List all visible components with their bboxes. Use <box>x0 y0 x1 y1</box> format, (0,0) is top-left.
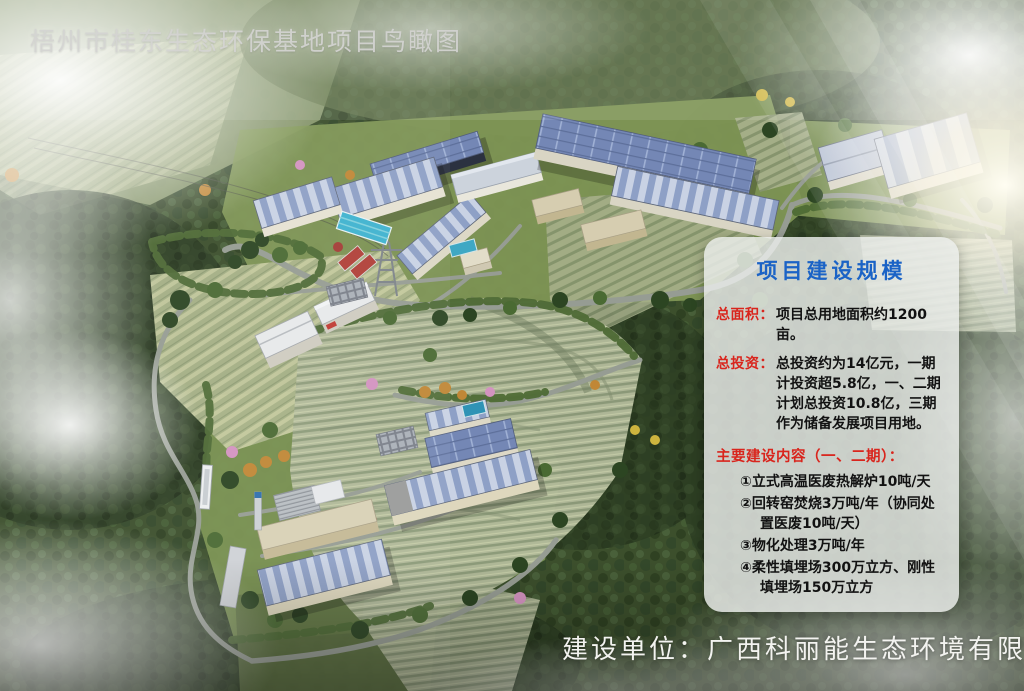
construction-items-list: ①立式高温医废热解炉10吨/天 ②回转窑焚烧3万吨/年（协同处置医废10吨/天）… <box>716 472 947 598</box>
main-construction-heading: 主要建设内容（一、二期）： <box>716 447 947 468</box>
construction-item-1: ①立式高温医废热解炉10吨/天 <box>740 472 947 492</box>
construction-unit: 建设单位：广西科丽能生态环境有限公司 <box>562 629 1024 666</box>
total-investment-row: 总投资： 总投资约为14亿元，一期计投资超5.8亿，一、二期计划总投资10.8亿… <box>716 354 947 434</box>
total-investment-value: 总投资约为14亿元，一期计投资超5.8亿，一、二期计划总投资10.8亿，三期作为… <box>776 354 947 434</box>
construction-item-3: ③物化处理3万吨/年 <box>740 536 947 556</box>
total-area-label: 总面积： <box>716 305 774 345</box>
total-area-value: 项目总用地面积约1200亩。 <box>776 305 947 345</box>
panel-title: 项目建设规模 <box>716 255 947 285</box>
total-area-row: 总面积： 项目总用地面积约1200亩。 <box>716 305 947 345</box>
total-investment-label: 总投资： <box>716 354 774 434</box>
project-scale-panel: 项目建设规模 总面积： 项目总用地面积约1200亩。 总投资： 总投资约为14亿… <box>704 237 959 612</box>
construction-item-2: ②回转窑焚烧3万吨/年（协同处置医废10吨/天） <box>740 494 947 534</box>
aerial-rendering-page: 梧州市桂东生态环保基地项目鸟瞰图 项目建设规模 总面积： 项目总用地面积约120… <box>0 0 1024 691</box>
construction-item-4: ④柔性填埋场300万立方、刚性填埋场150万立方 <box>740 558 947 598</box>
page-title: 梧州市桂东生态环保基地项目鸟瞰图 <box>30 22 462 58</box>
